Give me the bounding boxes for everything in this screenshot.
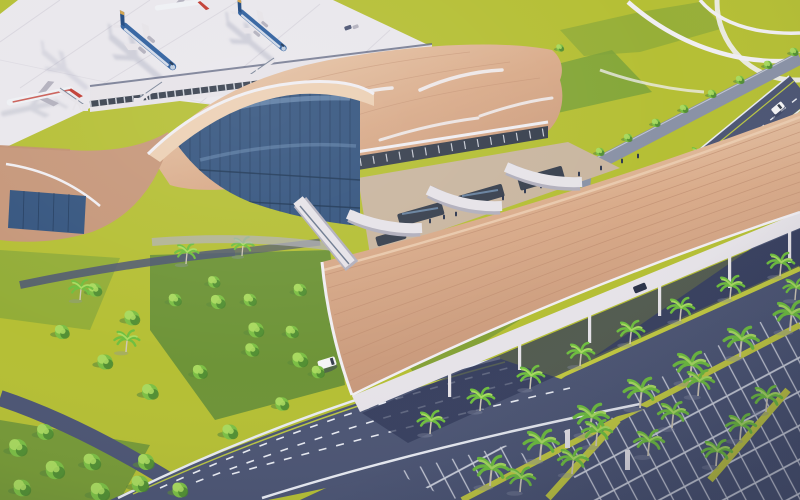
corner-shade-overlay <box>0 0 800 500</box>
airport-aerial-rendering: Aerial 3D architectural rendering of an … <box>0 0 800 500</box>
rendering-canvas: Aerial 3D architectural rendering of an … <box>0 0 800 500</box>
